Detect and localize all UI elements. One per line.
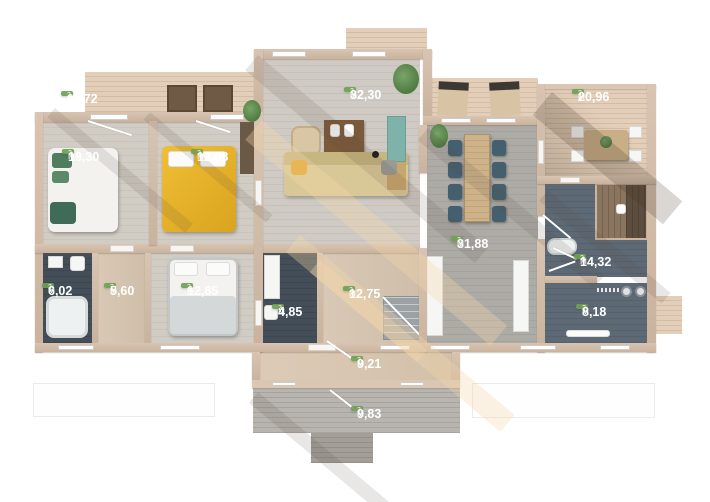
sauna-shadow: [626, 185, 646, 238]
potted-plant: [243, 100, 261, 122]
dining-table: [464, 134, 490, 222]
deck-box: [167, 85, 197, 112]
area-label-dining-room: 31,88м2: [451, 236, 463, 241]
bathtub: [46, 296, 88, 338]
window: [441, 118, 471, 123]
washer: [621, 286, 632, 297]
wall: [537, 176, 656, 184]
pillow: [206, 262, 230, 276]
window: [272, 51, 306, 57]
sofa-pillow-gray: [381, 160, 397, 175]
dining-chair: [492, 162, 506, 178]
dining-chair: [448, 206, 462, 222]
area-label-hallway-2: 12,75м2: [343, 286, 355, 291]
area-label-bathroom-1: 6,02м2: [42, 283, 54, 288]
dining-chair: [448, 140, 462, 156]
lounger: [489, 81, 521, 117]
window: [160, 345, 200, 350]
door: [255, 300, 262, 326]
area-label-porch: 9,21м2: [351, 356, 363, 361]
door: [538, 140, 544, 164]
area-label-front-terrace: 11,72м2: [61, 91, 73, 96]
wall: [145, 253, 151, 343]
door: [110, 245, 134, 252]
deck-box: [203, 85, 233, 112]
potted-plant: [430, 124, 448, 148]
area-label-bedroom-2: 12,08м2: [191, 149, 203, 154]
sink: [48, 256, 63, 268]
porch-post: [452, 352, 460, 382]
window: [58, 345, 94, 350]
area-label-rear-terrace: 20,96м2: [572, 89, 584, 94]
area-label-deck: 9,83м2: [351, 406, 363, 411]
window: [520, 345, 556, 350]
dining-chair: [492, 140, 506, 156]
dryer: [635, 286, 646, 297]
porch-rail-post: [400, 382, 424, 386]
deck-side-steps: [655, 296, 682, 334]
wall: [35, 343, 656, 352]
window: [486, 118, 516, 123]
deck-bottom-steps: [311, 433, 373, 463]
area-label-bathroom-2: 4,85м2: [272, 304, 284, 309]
door: [560, 177, 580, 183]
dining-chair: [492, 206, 506, 222]
wall: [35, 244, 420, 253]
wall: [647, 84, 656, 352]
sauna-stove: [616, 204, 626, 214]
stove-dot: [372, 151, 379, 158]
floor-plan: 11,72м2 19,30м2 12,08м2 32,30м2 20,96м2 …: [0, 0, 710, 502]
window: [210, 114, 244, 120]
area-label-bedroom-1: 19,30м2: [62, 149, 74, 154]
vanity-counter: [264, 255, 280, 299]
toilet: [70, 256, 85, 271]
potted-plant: [393, 64, 419, 94]
wall: [537, 239, 545, 352]
porch-post: [252, 352, 260, 382]
outdoor-chair: [629, 126, 642, 138]
dining-chair: [448, 184, 462, 200]
door: [255, 180, 262, 206]
pillow: [168, 151, 194, 167]
area-label-bedroom-3: 12,85м2: [181, 283, 193, 288]
bed-green-throw: [50, 202, 76, 224]
bed-gray-blanket: [170, 296, 236, 334]
wall: [35, 112, 43, 352]
area-label-hallway-1: 5,60м2: [104, 283, 116, 288]
terrace-railing: [545, 84, 656, 89]
window: [430, 345, 470, 350]
ground-pad-left: [33, 383, 215, 417]
outdoor-chair: [571, 150, 584, 162]
pillow: [174, 262, 198, 276]
wall: [92, 253, 98, 343]
table-plant: [600, 136, 612, 148]
area-label-boiler-room: 8,18м2: [576, 304, 588, 309]
area-label-living-room: 32,30м2: [344, 87, 356, 92]
area-label-utility-room: 14,32м2: [574, 254, 586, 259]
door: [170, 245, 194, 252]
dining-chair: [492, 184, 506, 200]
vent-grille: [597, 288, 619, 292]
outdoor-chair: [629, 150, 642, 162]
wall: [423, 49, 432, 117]
magazine: [330, 124, 340, 137]
lounger: [437, 81, 469, 117]
outdoor-chair: [571, 126, 584, 138]
wall: [545, 276, 597, 283]
window: [90, 114, 128, 120]
window: [600, 345, 630, 350]
dining-chair: [448, 162, 462, 178]
sofa-pillow-yellow: [291, 160, 307, 175]
ground-pad-right: [472, 383, 655, 418]
wall: [149, 121, 157, 245]
magazine: [344, 124, 354, 137]
wall: [419, 125, 427, 173]
bed-green-pillow-2: [52, 171, 69, 183]
porch-rail-post: [272, 382, 296, 386]
window: [380, 345, 410, 350]
wall: [317, 253, 323, 343]
kitchen-unit: [387, 116, 406, 162]
window: [352, 51, 386, 57]
bench: [566, 330, 610, 337]
wall: [419, 248, 427, 352]
tall-cabinet: [513, 260, 529, 332]
